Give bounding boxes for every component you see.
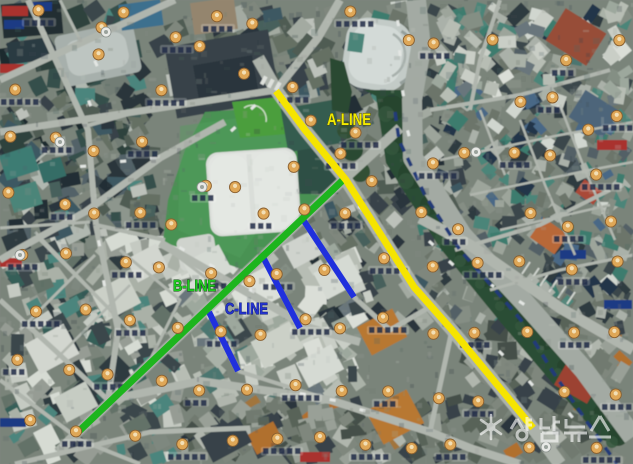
svg-text:C-LINE: C-LINE: [225, 301, 268, 318]
svg-text:A-LINE: A-LINE: [327, 111, 371, 129]
svg-text:B-LINE: B-LINE: [173, 278, 216, 295]
